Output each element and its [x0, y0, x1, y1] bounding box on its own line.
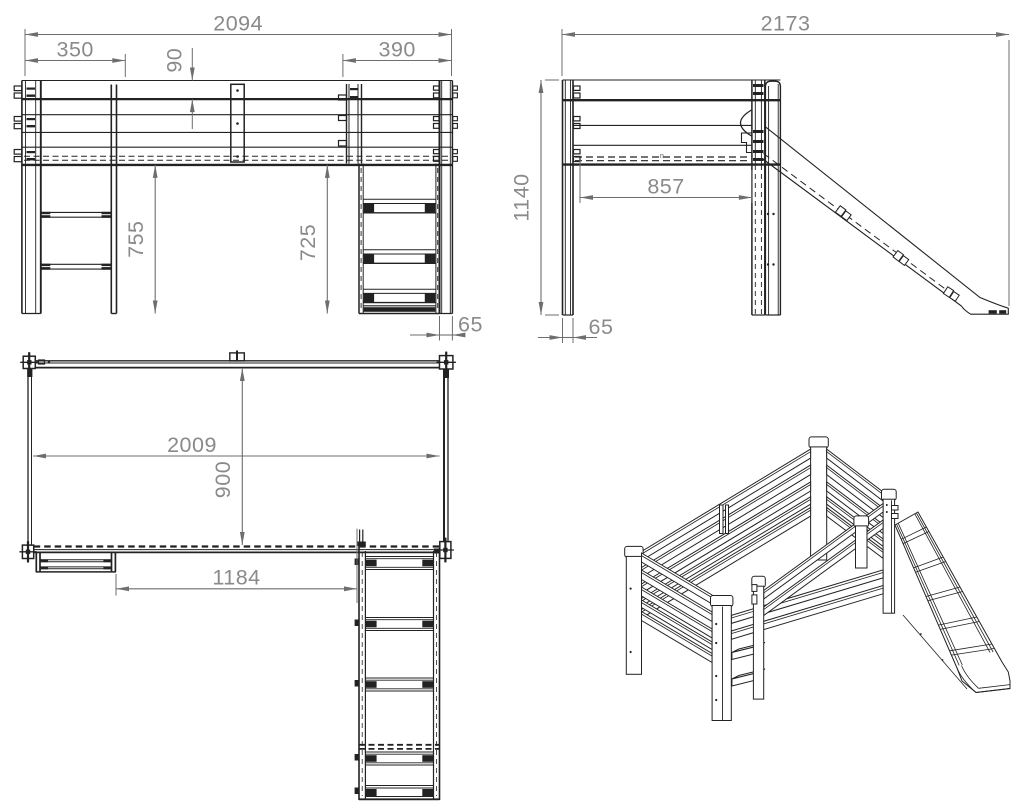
svg-text:857: 857 — [647, 175, 684, 199]
svg-text:725: 725 — [296, 224, 320, 261]
svg-text:2094: 2094 — [213, 12, 263, 36]
svg-text:65: 65 — [589, 315, 614, 339]
svg-text:1140: 1140 — [510, 173, 534, 221]
svg-text:90: 90 — [163, 48, 187, 73]
svg-text:350: 350 — [57, 38, 94, 62]
svg-text:65: 65 — [458, 313, 483, 337]
svg-text:1184: 1184 — [212, 566, 260, 590]
svg-text:390: 390 — [379, 38, 416, 62]
svg-text:900: 900 — [211, 461, 235, 498]
svg-text:2173: 2173 — [761, 12, 811, 36]
svg-text:755: 755 — [124, 221, 148, 258]
svg-text:n: n — [660, 153, 664, 160]
svg-text:2009: 2009 — [167, 433, 217, 457]
